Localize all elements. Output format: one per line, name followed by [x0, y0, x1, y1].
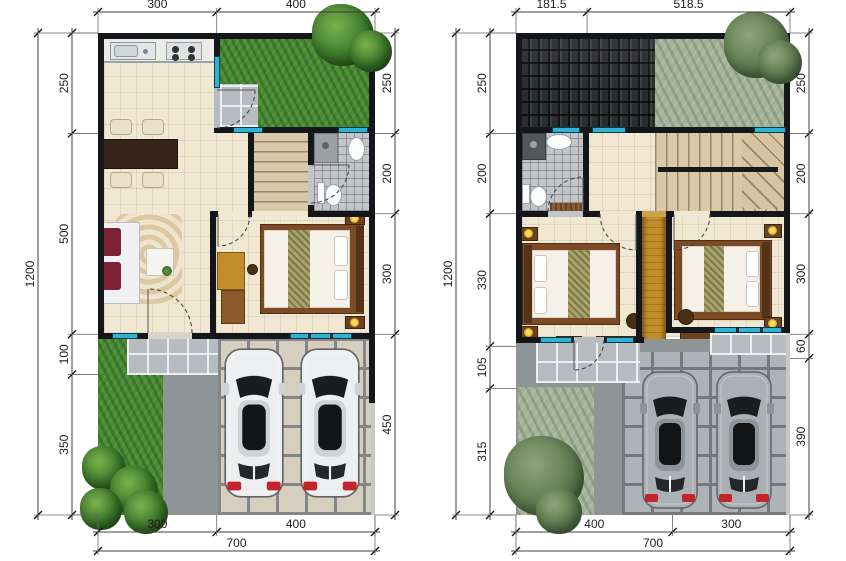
window — [540, 337, 572, 343]
window — [714, 327, 782, 333]
roof-tiles — [518, 37, 655, 129]
door-opening — [548, 211, 583, 217]
window-mullion — [760, 327, 763, 333]
stool — [678, 309, 694, 325]
bed-pillow — [534, 255, 547, 282]
window — [606, 337, 634, 343]
window — [592, 127, 626, 133]
wall — [636, 211, 642, 339]
bed-headboard — [762, 242, 770, 318]
floorplan-canvas: 3004003004007002505001003501200250200300… — [0, 0, 846, 561]
window — [552, 127, 580, 133]
wall — [666, 211, 672, 333]
car-top-view — [640, 370, 700, 510]
lamp — [768, 226, 777, 235]
window — [754, 127, 786, 133]
bed-pillow — [746, 251, 759, 277]
wall — [583, 127, 589, 217]
bed-headboard — [524, 245, 532, 323]
bed-runner — [568, 250, 590, 318]
wall — [516, 33, 522, 343]
upper-floor-plan — [0, 0, 846, 561]
toilet-tank — [522, 184, 530, 204]
car-top-view — [714, 370, 774, 510]
door-opening — [642, 211, 666, 217]
balcony-right — [710, 333, 788, 355]
lamp — [524, 328, 533, 337]
bed-runner — [704, 246, 724, 312]
lamp — [524, 229, 533, 238]
bathroom-sink — [546, 134, 572, 150]
tree — [536, 488, 582, 534]
bed-pillow — [746, 281, 759, 307]
window-mullion — [736, 327, 739, 333]
car — [640, 370, 700, 510]
car — [714, 370, 774, 510]
side-wall-lower — [786, 333, 790, 515]
shower-drain — [530, 141, 537, 148]
door-opening — [574, 337, 604, 343]
toilet-bowl — [530, 186, 547, 207]
bed-pillow — [534, 287, 547, 314]
bath-mat — [550, 203, 582, 211]
door-opening — [600, 211, 636, 217]
stair-railing — [658, 167, 778, 172]
balcony-left — [536, 343, 640, 383]
door-opening — [674, 211, 710, 217]
corridor-wood-floor — [642, 217, 666, 347]
tree — [758, 40, 802, 84]
